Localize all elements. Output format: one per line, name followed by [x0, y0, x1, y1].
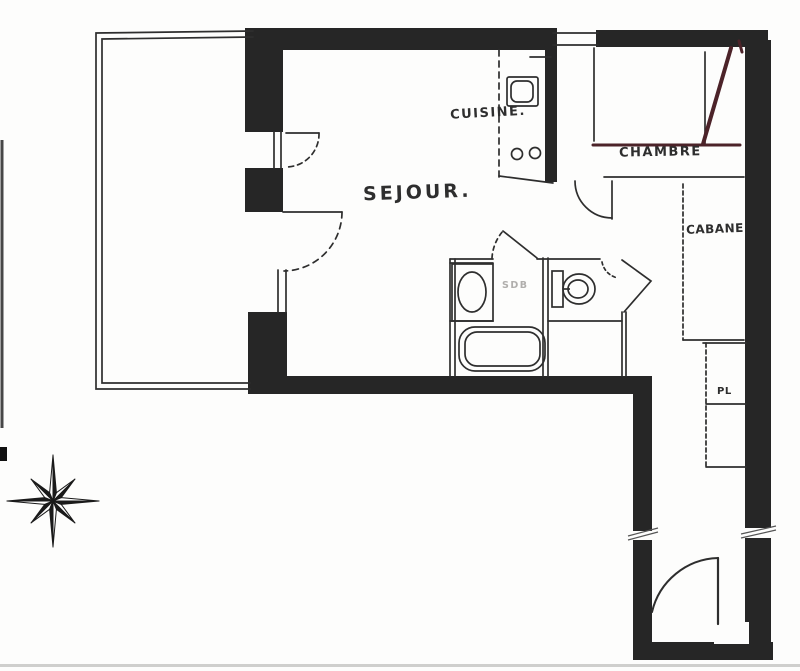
wall-kitchen-east [545, 28, 557, 182]
red-pen-line-diagonal [703, 48, 731, 144]
wall-west-mid [245, 168, 283, 212]
red-pen-annotations [593, 41, 742, 145]
toilet-tank [552, 271, 563, 307]
label-cuisine: CUISINE. [450, 104, 527, 123]
label-bathroom: SDB [502, 280, 528, 291]
wall-chambre-top [596, 30, 768, 47]
wall-hall-left [633, 376, 652, 644]
hob-burner [530, 148, 541, 159]
wall-bottom [248, 376, 652, 394]
compass-point [53, 455, 56, 501]
door-arc-entrance [652, 558, 718, 612]
compass-point [50, 455, 53, 501]
label-cabane: CABANE [686, 221, 744, 237]
door-arc-balcony [284, 212, 342, 271]
compass-rose-icon [7, 455, 99, 547]
scan-edge-chip [0, 447, 7, 461]
compass-point [7, 498, 53, 501]
wall-hall-bottom [633, 642, 773, 660]
door-arc-wc [602, 262, 618, 278]
floor-plan-page: SEJOUR. CUISINE. CHAMBRE CABANE PL SDB [0, 0, 800, 671]
door-arc-chambre [575, 181, 612, 218]
label-closet: PL [717, 386, 732, 397]
floor-plan-drawing: SEJOUR. CUISINE. CHAMBRE CABANE PL SDB [0, 0, 800, 671]
entrance-threshold-notch [714, 622, 749, 644]
compass-point [53, 501, 99, 504]
door-leaf-bathroom [503, 231, 537, 258]
label-sejour: SEJOUR. [363, 180, 472, 206]
hob-burner [512, 149, 523, 160]
door-arc-bathroom [492, 231, 503, 258]
door-leaf-wc [622, 260, 651, 312]
door-arc-sejour-upper [286, 133, 319, 167]
washbasin-bowl [458, 272, 486, 312]
kitchen-bottom-line [499, 176, 553, 183]
wall-west-upper [245, 40, 283, 132]
balcony-outline-inner [102, 37, 253, 383]
walls [245, 28, 773, 660]
bathtub-inner [465, 332, 540, 366]
wall-top [245, 28, 555, 50]
toilet-bowl-inner [568, 280, 588, 298]
label-chambre: CHAMBRE [619, 144, 702, 160]
compass-point [53, 501, 56, 547]
wall-right [745, 40, 771, 660]
scan-artifacts [0, 140, 800, 667]
kitchen-sink-basin [511, 81, 533, 102]
compass-point [53, 498, 99, 501]
compass-point [50, 501, 53, 547]
balcony-outline-outer [96, 31, 253, 389]
scan-bottom-band [0, 664, 800, 667]
compass-point [7, 501, 53, 504]
